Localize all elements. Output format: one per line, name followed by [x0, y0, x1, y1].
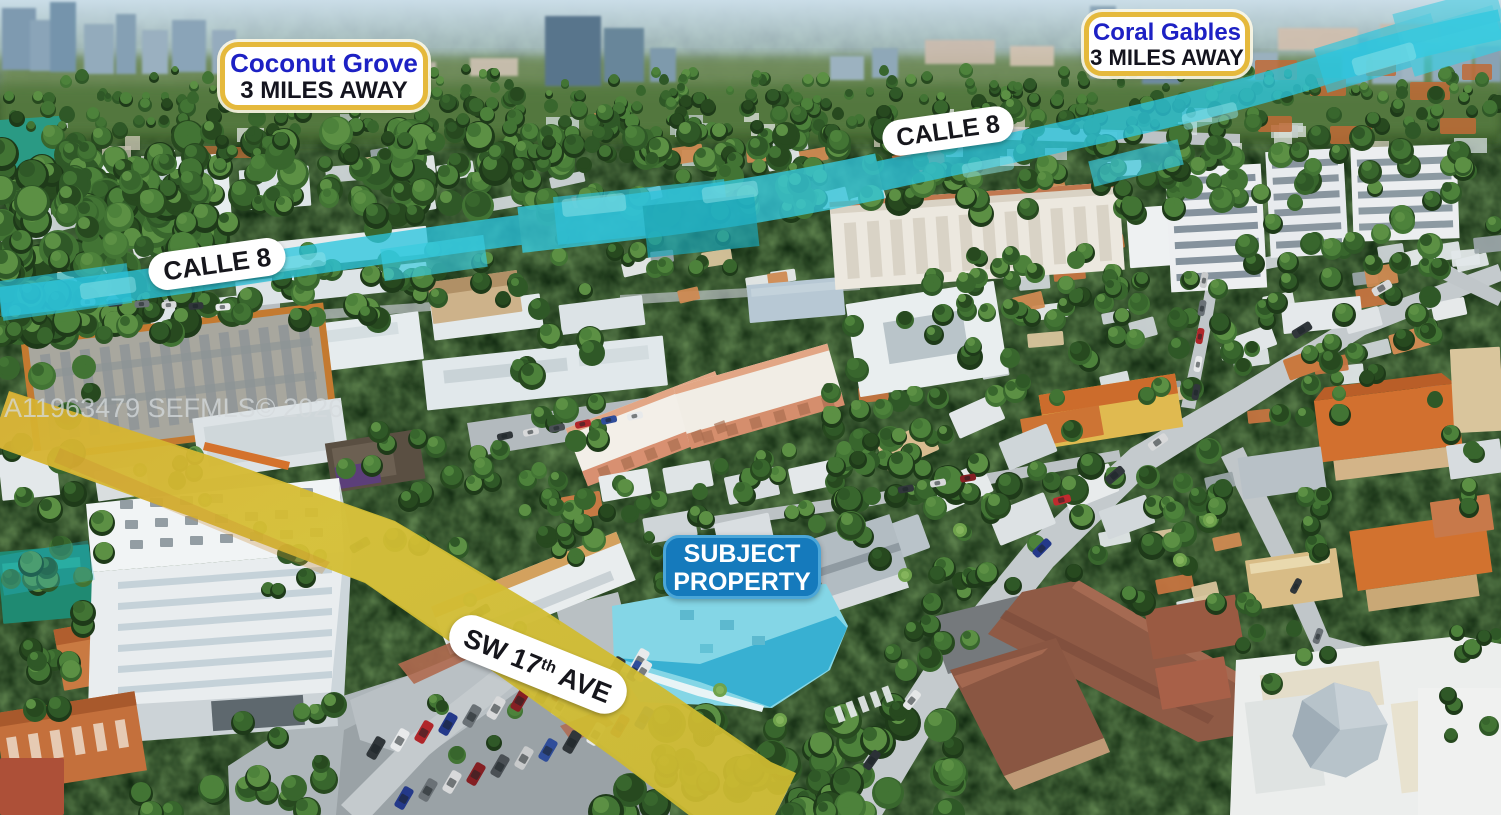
svg-text:A11963479 SEFMLS© 2026: A11963479 SEFMLS© 2026 [4, 393, 343, 423]
